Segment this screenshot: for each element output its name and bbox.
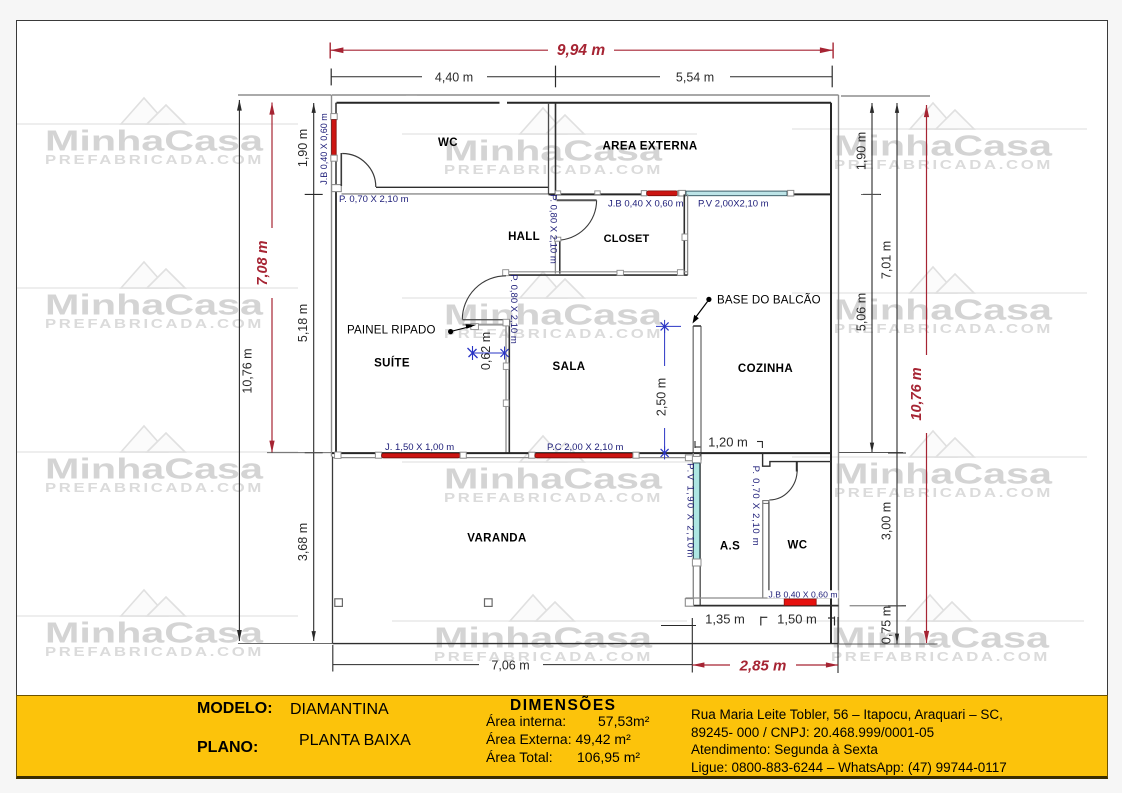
svg-text:PREFABRICADA.COM: PREFABRICADA.COM xyxy=(45,153,264,167)
svg-text:BASE DO BALCÃO: BASE DO BALCÃO xyxy=(717,294,821,307)
svg-text:P. 0,70 X 2,10 m: P. 0,70 X 2,10 m xyxy=(750,466,761,547)
svg-text:J.B 0,40 X 0,60 m: J.B 0,40 X 0,60 m xyxy=(319,113,329,185)
svg-text:PREFABRICADA.COM: PREFABRICADA.COM xyxy=(834,486,1053,500)
svg-text:5,18 m: 5,18 m xyxy=(296,304,310,342)
svg-text:10,76 m: 10,76 m xyxy=(241,348,255,393)
svg-text:P. 0,70 X 2,10 m: P. 0,70 X 2,10 m xyxy=(339,194,409,205)
svg-text:WC: WC xyxy=(788,540,808,552)
svg-text:P. 0,80 X 2,10 m: P. 0,80 X 2,10 m xyxy=(508,274,519,344)
svg-text:1,50 m: 1,50 m xyxy=(777,612,817,627)
svg-text:VARANDA: VARANDA xyxy=(467,533,526,545)
svg-text:2,85 m: 2,85 m xyxy=(739,658,787,675)
svg-text:AREA EXTERNA: AREA EXTERNA xyxy=(602,141,697,153)
svg-text:CLOSET: CLOSET xyxy=(604,233,650,245)
svg-text:PREFABRICADA.COM: PREFABRICADA.COM xyxy=(45,481,264,495)
svg-text:P.V 1,90 X 2,10m: P.V 1,90 X 2,10m xyxy=(685,463,696,559)
svg-text:4,40 m: 4,40 m xyxy=(435,71,473,85)
svg-text:PREFABRICADA.COM: PREFABRICADA.COM xyxy=(444,163,663,177)
svg-text:0,62 m: 0,62 m xyxy=(479,332,493,370)
svg-text:2,50 m: 2,50 m xyxy=(655,378,669,416)
svg-text:7,01 m: 7,01 m xyxy=(879,241,893,279)
svg-text:3,68 m: 3,68 m xyxy=(296,523,310,561)
svg-text:A.S: A.S xyxy=(720,541,740,553)
svg-text:1,90 m: 1,90 m xyxy=(854,132,868,170)
svg-text:5,54 m: 5,54 m xyxy=(676,71,714,85)
svg-text:SALA: SALA xyxy=(553,361,586,373)
svg-text:SUÍTE: SUÍTE xyxy=(374,357,410,370)
svg-text:PREFABRICADA.COM: PREFABRICADA.COM xyxy=(434,650,653,664)
svg-text:P.V 2,00X2,10 m: P.V 2,00X2,10 m xyxy=(698,199,769,210)
svg-text:PREFABRICADA.COM: PREFABRICADA.COM xyxy=(831,650,1050,664)
svg-text:PREFABRICADA.COM: PREFABRICADA.COM xyxy=(45,645,264,659)
svg-text:HALL: HALL xyxy=(508,231,540,243)
svg-text:3,00 m: 3,00 m xyxy=(879,502,893,540)
svg-text:9,94 m: 9,94 m xyxy=(557,42,605,59)
svg-text:P. 0,80 X 2,10 m: P. 0,80 X 2,10 m xyxy=(548,194,559,264)
svg-text:PREFABRICADA.COM: PREFABRICADA.COM xyxy=(45,317,264,331)
svg-text:PAINEL RIPADO: PAINEL RIPADO xyxy=(347,325,436,337)
svg-text:PREFABRICADA.COM: PREFABRICADA.COM xyxy=(444,491,663,505)
svg-text:1,90 m: 1,90 m xyxy=(296,129,310,167)
svg-text:COZINHA: COZINHA xyxy=(738,363,793,375)
svg-text:1,20 m: 1,20 m xyxy=(708,435,748,450)
svg-text:0,75 m: 0,75 m xyxy=(879,606,893,644)
svg-text:5,06 m: 5,06 m xyxy=(854,293,868,331)
svg-text:J.B 0,40 X 0,60 m: J.B 0,40 X 0,60 m xyxy=(769,590,838,600)
svg-text:J.B 0,40 X 0,60 m: J.B 0,40 X 0,60 m xyxy=(608,199,684,210)
svg-text:WC: WC xyxy=(438,137,458,149)
svg-text:10,76 m: 10,76 m xyxy=(909,367,925,420)
svg-text:J. 1,50 X 1,00 m: J. 1,50 X 1,00 m xyxy=(385,442,454,453)
svg-text:P.C 2,00 X 2,10 m: P.C 2,00 X 2,10 m xyxy=(547,442,623,453)
svg-text:7,08 m: 7,08 m xyxy=(255,240,271,285)
svg-text:1,35 m: 1,35 m xyxy=(705,612,745,627)
svg-text:7,06 m: 7,06 m xyxy=(491,659,529,673)
